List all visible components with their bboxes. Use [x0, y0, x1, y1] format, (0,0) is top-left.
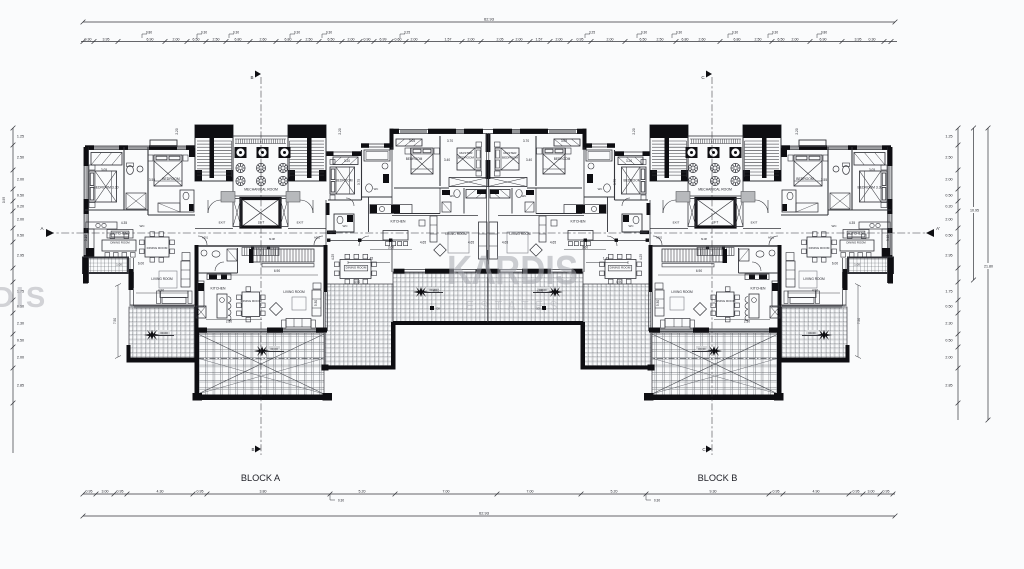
- svg-text:±0.00: ±0.00: [433, 289, 440, 293]
- svg-text:3.40: 3.40: [526, 158, 532, 162]
- svg-text:0.95: 0.95: [577, 37, 584, 41]
- svg-text:4.90: 4.90: [813, 490, 820, 494]
- svg-text:0.30: 0.30: [326, 31, 332, 35]
- svg-text:0.30: 0.30: [85, 37, 92, 41]
- svg-text:2.00: 2.00: [17, 218, 24, 222]
- svg-text:6.99: 6.99: [380, 37, 387, 41]
- svg-text:BEDROOM: BEDROOM: [406, 157, 423, 161]
- svg-text:DINING ROOM: DINING ROOM: [110, 241, 130, 245]
- svg-text:BEDROOM: BEDROOM: [502, 156, 518, 160]
- svg-text:4.90: 4.90: [616, 280, 622, 284]
- svg-text:EXIT: EXIT: [219, 221, 226, 225]
- svg-text:KITCHEN: KITCHEN: [751, 287, 766, 291]
- svg-text:2.05: 2.05: [497, 37, 504, 41]
- svg-text:BLOCK A: BLOCK A: [241, 473, 281, 483]
- svg-text:4.35: 4.35: [849, 221, 855, 225]
- svg-text:4.90: 4.90: [158, 289, 164, 293]
- svg-text:0.20: 0.20: [17, 205, 24, 209]
- svg-text:KITCHEN: KITCHEN: [211, 287, 226, 291]
- svg-text:3.75: 3.75: [357, 179, 361, 185]
- svg-text:62.93: 62.93: [484, 17, 495, 22]
- svg-text:6.80: 6.80: [734, 37, 741, 41]
- svg-text:LIVING ROOM: LIVING ROOM: [671, 290, 693, 294]
- svg-text:2.85: 2.85: [945, 384, 952, 388]
- svg-text:0.30: 0.30: [201, 31, 207, 35]
- svg-text:±0.00: ±0.00: [160, 331, 168, 335]
- svg-text:0.30: 0.30: [772, 31, 778, 35]
- svg-text:A001: A001: [202, 236, 209, 240]
- svg-text:2.00: 2.00: [411, 37, 418, 41]
- svg-text:2.60: 2.60: [260, 37, 267, 41]
- svg-text:3.00: 3.00: [102, 490, 109, 494]
- svg-text:BEDROOM: BEDROOM: [554, 157, 571, 161]
- svg-text:WC: WC: [343, 224, 349, 228]
- svg-text:3.80: 3.80: [260, 490, 267, 494]
- svg-text:BLOCK B: BLOCK B: [698, 473, 738, 483]
- svg-text:4.25: 4.25: [331, 254, 335, 260]
- svg-text:3.25: 3.25: [404, 31, 410, 35]
- svg-text:2.20: 2.20: [632, 128, 636, 134]
- svg-text:LIVING ROOM: LIVING ROOM: [445, 232, 467, 236]
- svg-text:0.60: 0.60: [395, 37, 402, 41]
- svg-text:3.95: 3.95: [103, 37, 110, 41]
- svg-text:4.65: 4.65: [468, 241, 474, 245]
- svg-text:3.40: 3.40: [444, 158, 450, 162]
- svg-text:MASTER: MASTER: [504, 151, 518, 155]
- svg-text:2.95: 2.95: [17, 254, 24, 258]
- svg-text:2.00: 2.00: [945, 356, 952, 360]
- svg-text:3.60: 3.60: [388, 246, 394, 250]
- svg-text:0.50: 0.50: [17, 234, 24, 238]
- svg-text:0.95: 0.95: [2, 197, 6, 203]
- svg-text:0.95: 0.95: [197, 490, 204, 494]
- svg-text:2.30: 2.30: [744, 320, 750, 324]
- svg-text:6.50: 6.50: [328, 37, 335, 41]
- svg-text:3.55: 3.55: [149, 178, 155, 182]
- svg-text:4.25: 4.25: [639, 254, 643, 260]
- svg-text:0.50: 0.50: [945, 194, 952, 198]
- svg-text:1.00: 1.00: [116, 263, 122, 267]
- svg-text:0.90: 0.90: [364, 37, 371, 41]
- svg-text:0.30: 0.30: [676, 31, 682, 35]
- svg-text:LIVING ROOM: LIVING ROOM: [151, 277, 173, 281]
- svg-text:WC: WC: [832, 224, 838, 228]
- svg-text:KITCHEN: KITCHEN: [391, 220, 406, 224]
- svg-text:1.45: 1.45: [367, 257, 373, 261]
- svg-text:DIS: DIS: [0, 282, 47, 314]
- svg-text:2.50: 2.50: [213, 37, 220, 41]
- svg-text:LIVING ROOM: LIVING ROOM: [509, 232, 531, 236]
- svg-text:WC: WC: [598, 187, 603, 191]
- svg-text:6.00: 6.00: [832, 262, 838, 266]
- svg-text:2.00: 2.00: [945, 218, 952, 222]
- svg-text:DINING ROOM: DINING ROOM: [147, 246, 168, 250]
- svg-text:LIVING ROOM: LIVING ROOM: [283, 290, 305, 294]
- svg-text:4.90: 4.90: [354, 280, 360, 284]
- svg-text:2.50: 2.50: [657, 37, 664, 41]
- svg-text:3.10: 3.10: [886, 235, 890, 241]
- svg-text:2.50: 2.50: [945, 156, 952, 160]
- svg-text:7.50: 7.50: [857, 318, 861, 324]
- svg-text:0.95: 0.95: [86, 490, 93, 494]
- svg-text:3.10: 3.10: [84, 235, 88, 241]
- svg-text:2.50: 2.50: [306, 37, 313, 41]
- svg-text:2.85: 2.85: [17, 384, 24, 388]
- svg-text:3.05: 3.05: [409, 139, 415, 143]
- svg-text:9.30: 9.30: [710, 490, 717, 494]
- svg-text:5.20: 5.20: [611, 490, 618, 494]
- svg-text:3.05: 3.05: [561, 139, 567, 143]
- svg-text:WC: WC: [374, 187, 379, 191]
- svg-text:0.30: 0.30: [654, 499, 660, 503]
- svg-text:4.90: 4.90: [812, 289, 818, 293]
- svg-text:4.30: 4.30: [157, 490, 164, 494]
- svg-text:A: A: [40, 226, 43, 231]
- svg-text:3.05: 3.05: [869, 168, 875, 172]
- svg-text:EXIT: EXIT: [297, 221, 304, 225]
- svg-text:0.50: 0.50: [17, 339, 24, 343]
- svg-text:2.30: 2.30: [945, 322, 952, 326]
- svg-text:1.57: 1.57: [445, 37, 452, 41]
- svg-text:BEDROOM 3.30: BEDROOM 3.30: [93, 186, 118, 190]
- svg-text:2.00: 2.00: [17, 178, 24, 182]
- svg-text:0.50: 0.50: [945, 305, 952, 309]
- svg-text:1.25: 1.25: [945, 135, 952, 139]
- svg-text:2.00: 2.00: [348, 37, 355, 41]
- svg-text:1.00: 1.00: [854, 263, 860, 267]
- svg-text:MECHANICAL ROOM: MECHANICAL ROOM: [698, 188, 732, 192]
- svg-text:2.00: 2.00: [516, 37, 523, 41]
- svg-text:DINING ROOM: DINING ROOM: [241, 299, 262, 303]
- svg-text:62.93: 62.93: [479, 511, 490, 516]
- svg-text:2.20: 2.20: [338, 128, 342, 134]
- svg-text:DINING ROOM: DINING ROOM: [715, 299, 736, 303]
- svg-text:0.20: 0.20: [945, 205, 952, 209]
- svg-text:5.30: 5.30: [314, 300, 318, 306]
- svg-text:6.50: 6.50: [778, 37, 785, 41]
- svg-text:0.80: 0.80: [146, 31, 152, 35]
- svg-text:BEDROOM: BEDROOM: [796, 177, 814, 181]
- svg-text:KITCHEN: KITCHEN: [849, 232, 864, 236]
- svg-text:BEDROOM: BEDROOM: [162, 177, 180, 181]
- svg-text:2.00: 2.00: [468, 37, 475, 41]
- svg-text:6.90: 6.90: [147, 37, 154, 41]
- svg-text:A002: A002: [314, 236, 321, 240]
- svg-text:3.70: 3.70: [523, 139, 529, 143]
- svg-text:7.00: 7.00: [527, 490, 534, 494]
- svg-text:6.50: 6.50: [193, 37, 200, 41]
- svg-text:5.20: 5.20: [359, 490, 366, 494]
- svg-text:6.80: 6.80: [285, 37, 292, 41]
- svg-text:4.65: 4.65: [502, 241, 508, 245]
- svg-text:B: B: [250, 75, 253, 80]
- svg-text:BEDROOM: BEDROOM: [335, 179, 352, 183]
- svg-text:6.50: 6.50: [640, 37, 647, 41]
- svg-text:WC: WC: [522, 194, 527, 198]
- svg-text:DINING ROOM: DINING ROOM: [846, 241, 866, 245]
- svg-text:0.30: 0.30: [732, 31, 738, 35]
- svg-text:2.00: 2.00: [792, 37, 799, 41]
- svg-text:2.00: 2.00: [607, 37, 614, 41]
- svg-text:0.30: 0.30: [869, 37, 876, 41]
- svg-text:10.95: 10.95: [970, 209, 979, 213]
- svg-text:WC: WC: [140, 224, 146, 228]
- svg-text:6.80: 6.80: [682, 37, 689, 41]
- svg-text:DINING ROOM: DINING ROOM: [346, 266, 367, 270]
- svg-text:1.57: 1.57: [536, 37, 543, 41]
- svg-text:1.25: 1.25: [17, 135, 24, 139]
- svg-text:5.30: 5.30: [656, 300, 660, 306]
- svg-text:0.30: 0.30: [641, 31, 647, 35]
- svg-text:A002: A002: [656, 236, 663, 240]
- svg-text:ESTATES: ESTATES: [466, 299, 564, 313]
- svg-text:6.90: 6.90: [696, 269, 702, 273]
- svg-text:0.95: 0.95: [773, 490, 780, 494]
- svg-text:0.50: 0.50: [945, 234, 952, 238]
- svg-text:7.00: 7.00: [443, 490, 450, 494]
- svg-text:LIFT: LIFT: [712, 221, 719, 225]
- svg-text:MECHANICAL ROOM: MECHANICAL ROOM: [244, 188, 278, 192]
- svg-text:2.00: 2.00: [17, 356, 24, 360]
- svg-text:4.65: 4.65: [420, 241, 426, 245]
- svg-text:6.90: 6.90: [274, 269, 280, 273]
- svg-text:3.05: 3.05: [101, 168, 107, 172]
- svg-text:0.30: 0.30: [233, 31, 239, 35]
- svg-text:3.25: 3.25: [589, 31, 595, 35]
- svg-text:3.55: 3.55: [821, 178, 827, 182]
- svg-text:2.95: 2.95: [945, 254, 952, 258]
- svg-text:2.50: 2.50: [755, 37, 762, 41]
- svg-text:0.50: 0.50: [945, 339, 952, 343]
- svg-text:2.00: 2.00: [556, 37, 563, 41]
- svg-text:0.30: 0.30: [294, 31, 300, 35]
- svg-text:4.35: 4.35: [121, 221, 127, 225]
- svg-text:M.08: M.08: [701, 237, 707, 241]
- svg-text:MASTER: MASTER: [460, 151, 474, 155]
- svg-text:BEDROOM: BEDROOM: [623, 179, 640, 183]
- svg-text:LIFT: LIFT: [258, 221, 265, 225]
- svg-text:LIVING ROOM: LIVING ROOM: [803, 277, 825, 281]
- svg-text:6.80: 6.80: [235, 37, 242, 41]
- svg-text:2.20: 2.20: [175, 128, 179, 134]
- svg-text:3.70: 3.70: [447, 139, 453, 143]
- svg-text:DINING ROOM: DINING ROOM: [610, 266, 631, 270]
- svg-text:3.20: 3.20: [626, 159, 632, 163]
- svg-text:BEDROOM: BEDROOM: [458, 156, 474, 160]
- svg-text:0.95: 0.95: [117, 490, 124, 494]
- svg-text:KΛRDIS: KΛRDIS: [447, 247, 578, 293]
- svg-text:3.00: 3.00: [868, 490, 875, 494]
- svg-text:EXIT: EXIT: [673, 221, 680, 225]
- svg-text:6.90: 6.90: [820, 37, 827, 41]
- svg-text:DINING ROOM: DINING ROOM: [809, 246, 830, 250]
- svg-text:±0.00: ±0.00: [270, 347, 278, 351]
- svg-text:BEDROOM 3.30: BEDROOM 3.30: [857, 186, 882, 190]
- svg-text:WC: WC: [629, 224, 635, 228]
- svg-text:2.20: 2.20: [795, 128, 799, 134]
- svg-text:0.50: 0.50: [17, 194, 24, 198]
- svg-text:3.60: 3.60: [582, 246, 588, 250]
- svg-text:2.00: 2.00: [173, 37, 180, 41]
- svg-text:6.00: 6.00: [138, 262, 144, 266]
- svg-text:4.65: 4.65: [550, 241, 556, 245]
- svg-text:KITCHEN: KITCHEN: [571, 220, 586, 224]
- svg-text:2.50: 2.50: [17, 156, 24, 160]
- svg-text:A001: A001: [768, 236, 775, 240]
- svg-text:0.80: 0.80: [821, 31, 827, 35]
- svg-text:2.30: 2.30: [226, 320, 232, 324]
- svg-text:B: B: [251, 447, 254, 452]
- svg-text:KITCHEN: KITCHEN: [113, 232, 128, 236]
- svg-text:M.08: M.08: [269, 237, 275, 241]
- svg-text:21.80: 21.80: [984, 265, 993, 269]
- svg-text:0.95: 0.95: [883, 490, 890, 494]
- svg-text:3.95: 3.95: [855, 37, 862, 41]
- svg-text:7.50: 7.50: [113, 318, 117, 324]
- svg-text:3.20: 3.20: [344, 159, 350, 163]
- svg-text:A': A': [936, 226, 940, 231]
- svg-text:EXIT: EXIT: [751, 221, 758, 225]
- svg-text:3.75: 3.75: [613, 179, 617, 185]
- svg-text:1.45: 1.45: [603, 257, 609, 261]
- svg-text:2.60: 2.60: [699, 37, 706, 41]
- svg-text:1.75: 1.75: [945, 290, 952, 294]
- svg-text:0.30: 0.30: [338, 499, 344, 503]
- svg-text:0.95: 0.95: [853, 490, 860, 494]
- svg-text:2.00: 2.00: [945, 178, 952, 182]
- svg-text:2.30: 2.30: [17, 322, 24, 326]
- svg-text:WC: WC: [450, 194, 455, 198]
- svg-text:D8: D8: [436, 307, 440, 311]
